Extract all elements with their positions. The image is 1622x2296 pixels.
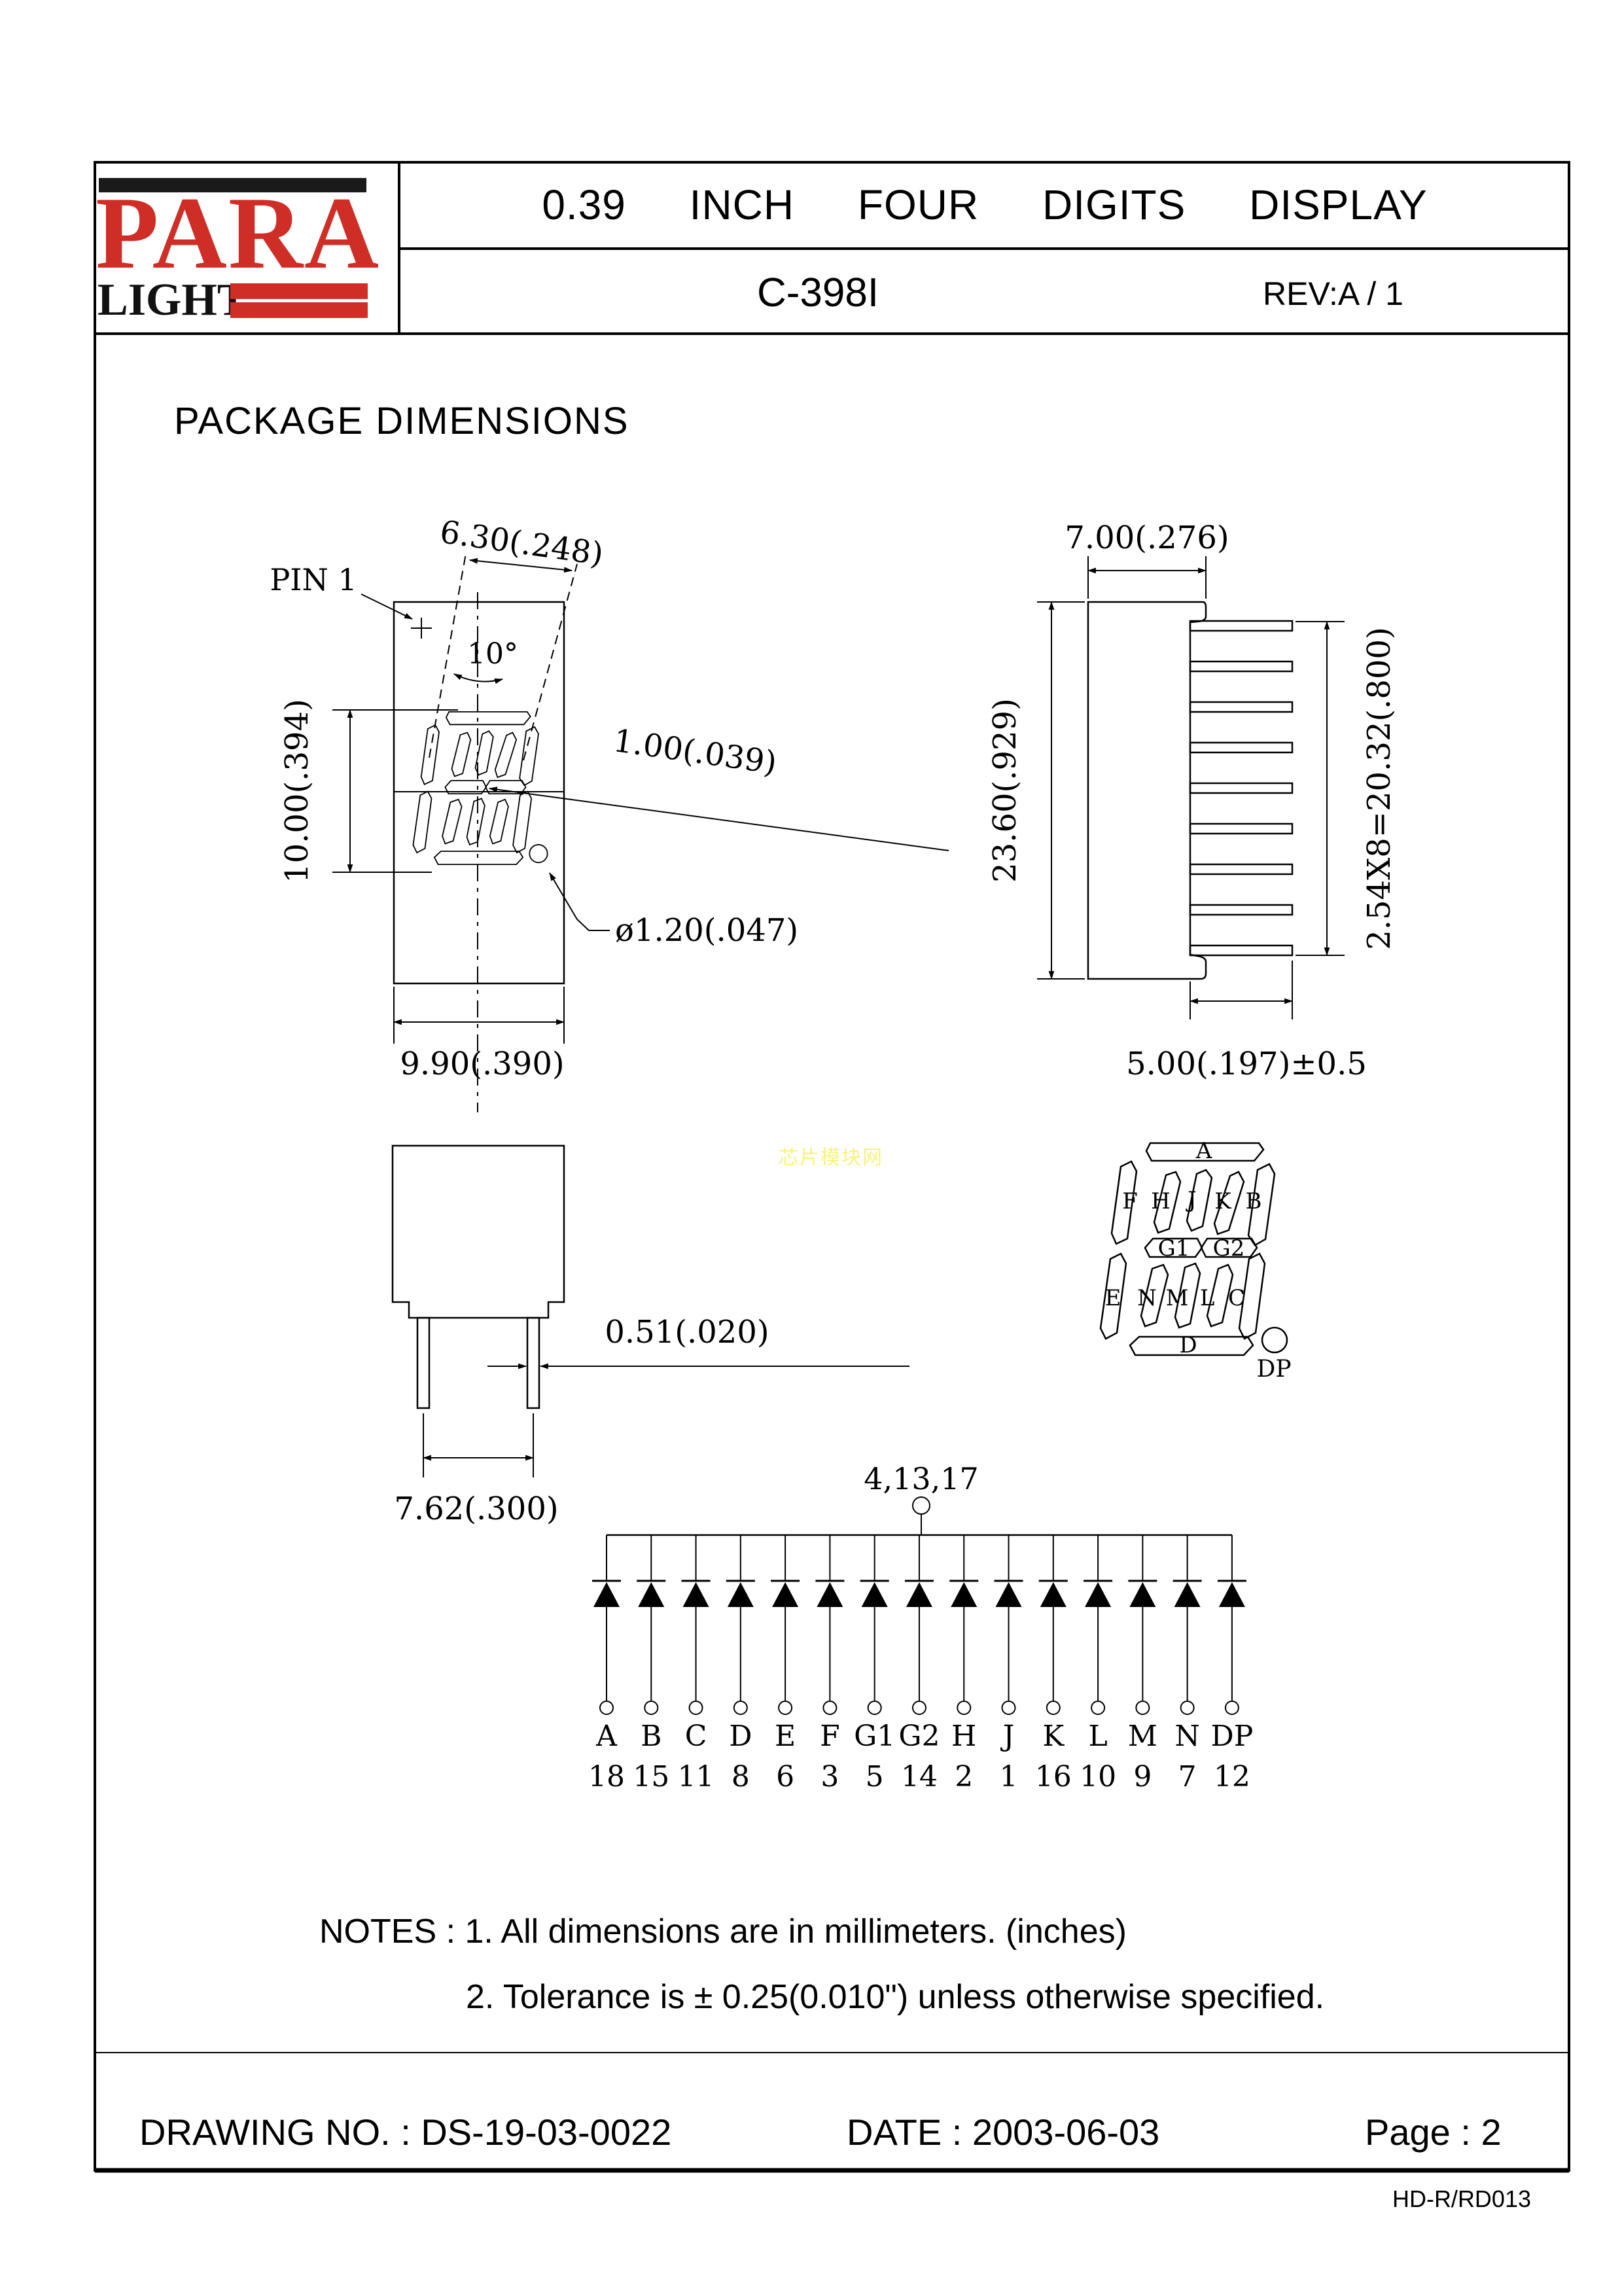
watermark-text: 芯片模块网: [779, 1141, 883, 1170]
segment-label-a: A: [1195, 1138, 1212, 1164]
logo-brand-bottom: LIGHT: [97, 277, 248, 323]
schematic-pin-number: 8: [732, 1760, 750, 1793]
schematic-column-C: C11: [678, 1535, 714, 1793]
segment-label-n: N: [1137, 1285, 1157, 1311]
dim-front-top-width: 6.30(.248): [438, 514, 606, 573]
segment-label-d: D: [1179, 1332, 1197, 1358]
schematic-segment-label: K: [1042, 1720, 1065, 1753]
front-view-drawing: [332, 554, 949, 1112]
schematic-segment-label: B: [641, 1720, 661, 1753]
segment-label-c: C: [1228, 1285, 1245, 1311]
dim-side-pin-pitch: 2.54X8=20.32(.800): [1361, 627, 1398, 950]
schematic-common-label: 4,13,17: [864, 1461, 979, 1496]
schematic-segment-label: N: [1174, 1720, 1200, 1753]
schematic-segment-label: G1: [854, 1720, 895, 1753]
segment-label-m: M: [1166, 1285, 1189, 1311]
schematic-pin-number: 1: [1000, 1760, 1018, 1793]
footer-drawing-number: DRAWING NO. : DS-19-03-0022: [139, 2111, 671, 2153]
schematic-pin-number: 10: [1080, 1760, 1116, 1793]
pin1-label: PIN 1: [270, 562, 357, 597]
logo-red-bar-2: [230, 302, 368, 318]
schematic-pin-number: 3: [820, 1760, 839, 1793]
segment-label-g2: G2: [1213, 1235, 1245, 1262]
notes-line-1: NOTES : 1. All dimensions are in millime…: [319, 1912, 1127, 1951]
segment-label-g1: G1: [1158, 1235, 1190, 1262]
schematic-pin-number: 11: [678, 1760, 714, 1793]
schematic-column-J: J1: [995, 1535, 1023, 1793]
schematic-diagram: 4,13,17 A18B15C11D8E6F3G15G214H2J1K16L10…: [588, 1461, 1253, 1793]
bottom-view-drawing: [393, 1146, 909, 1477]
schematic-column-K: K16: [1035, 1535, 1072, 1793]
dim-side-depth: 7.00(.276): [1065, 520, 1229, 556]
schematic-pin-number: 5: [866, 1760, 884, 1793]
schematic-column-M: M9: [1128, 1535, 1157, 1793]
segment-label-h: H: [1151, 1188, 1171, 1214]
schematic-pin-number: 16: [1035, 1760, 1072, 1793]
schematic-column-G1: G15: [854, 1535, 895, 1793]
schematic-column-L: L10: [1080, 1535, 1116, 1793]
dim-bottom-pin-spacing: 7.62(.300): [394, 1491, 558, 1527]
segment-label-f: F: [1122, 1188, 1138, 1214]
schematic-pin-number: 9: [1133, 1760, 1152, 1793]
segment-label-b: B: [1246, 1188, 1262, 1214]
document-title: 0.39 INCH FOUR DIGITS DISPLAY: [406, 181, 1564, 229]
segment-label-dp: DP: [1256, 1356, 1291, 1383]
revision-label: REV:A / 1: [1263, 275, 1479, 313]
schematic-segment-label: C: [685, 1720, 707, 1753]
schematic-segment-label: H: [951, 1720, 976, 1753]
notes-line-2: 2. Tolerance is ± 0.25(0.010") unless ot…: [466, 1977, 1324, 2017]
dim-front-body-width: 9.90(.390): [400, 1046, 564, 1082]
schematic-pin-number: 6: [776, 1760, 794, 1793]
schematic-column-H: H2: [949, 1535, 978, 1793]
schematic-column-D: D8: [726, 1535, 755, 1793]
segment-label-k: K: [1214, 1188, 1231, 1214]
section-title: PACKAGE DIMENSIONS: [174, 399, 629, 443]
schematic-column-N: N7: [1173, 1535, 1202, 1793]
schematic-pin-number: 12: [1214, 1760, 1250, 1793]
side-view-drawing: [1037, 556, 1345, 1019]
schematic-column-F: F3: [815, 1535, 844, 1793]
schematic-segment-label: F: [820, 1720, 840, 1753]
schematic-segment-label: M: [1128, 1720, 1157, 1753]
dim-front-digit-height: 10.00(.394): [279, 699, 315, 883]
dim-front-segment-width: 1.00(.039): [611, 722, 779, 781]
segment-label-e: E: [1105, 1285, 1121, 1311]
schematic-segment-label: A: [595, 1720, 618, 1753]
schematic-segment-label: E: [775, 1720, 796, 1753]
logo-brand-top: PARA: [96, 185, 370, 283]
schematic-column-DP: DP12: [1210, 1535, 1253, 1793]
schematic-pin-number: 7: [1178, 1760, 1197, 1793]
schematic-column-A: A18: [588, 1535, 625, 1793]
footer-doc-code: HD-R/RD013: [1335, 2185, 1531, 2213]
logo-red-bar-1: [230, 283, 368, 299]
schematic-pin-number: 18: [588, 1760, 625, 1793]
dim-side-height: 23.60(.929): [987, 698, 1023, 883]
dim-front-angle: 10°: [467, 637, 518, 671]
schematic-column-B: B15: [633, 1535, 669, 1793]
segment-diagram: A F H J K B G1 G2 E N M L C D DP: [1101, 1138, 1292, 1383]
segment-label-l: L: [1200, 1285, 1215, 1311]
schematic-column-G2: G214: [898, 1535, 940, 1793]
schematic-segment-label: L: [1088, 1720, 1107, 1753]
dim-front-dp-diameter: ø1.20(.047): [615, 912, 798, 949]
dimension-labels: PIN 1 6.30(.248) 10° 10.00(.394) 1.00(.0…: [270, 514, 1398, 1527]
schematic-segment-label: D: [729, 1720, 752, 1753]
dim-bottom-pin-thickness: 0.51(.020): [605, 1314, 769, 1351]
schematic-pin-number: 14: [901, 1760, 938, 1793]
schematic-segment-label: DP: [1210, 1720, 1253, 1753]
schematic-pin-number: 15: [633, 1760, 669, 1793]
dim-side-pin-length: 5.00(.197)±0.5: [1126, 1046, 1367, 1082]
footer-page-number: Page : 2: [1365, 2111, 1502, 2153]
part-number: C-398I: [641, 270, 995, 316]
segment-label-j: J: [1186, 1187, 1197, 1213]
datasheet-page: A F H J K B G1 G2 E N M L C D DP 4,13,17…: [0, 0, 1622, 2296]
side-view-pins: [1190, 621, 1292, 955]
schematic-segment-label: G2: [898, 1720, 940, 1753]
schematic-segment-label: J: [1000, 1720, 1015, 1753]
schematic-column-E: E6: [771, 1535, 800, 1793]
footer-date: DATE : 2003-06-03: [847, 2111, 1159, 2153]
schematic-pin-number: 2: [955, 1760, 973, 1793]
